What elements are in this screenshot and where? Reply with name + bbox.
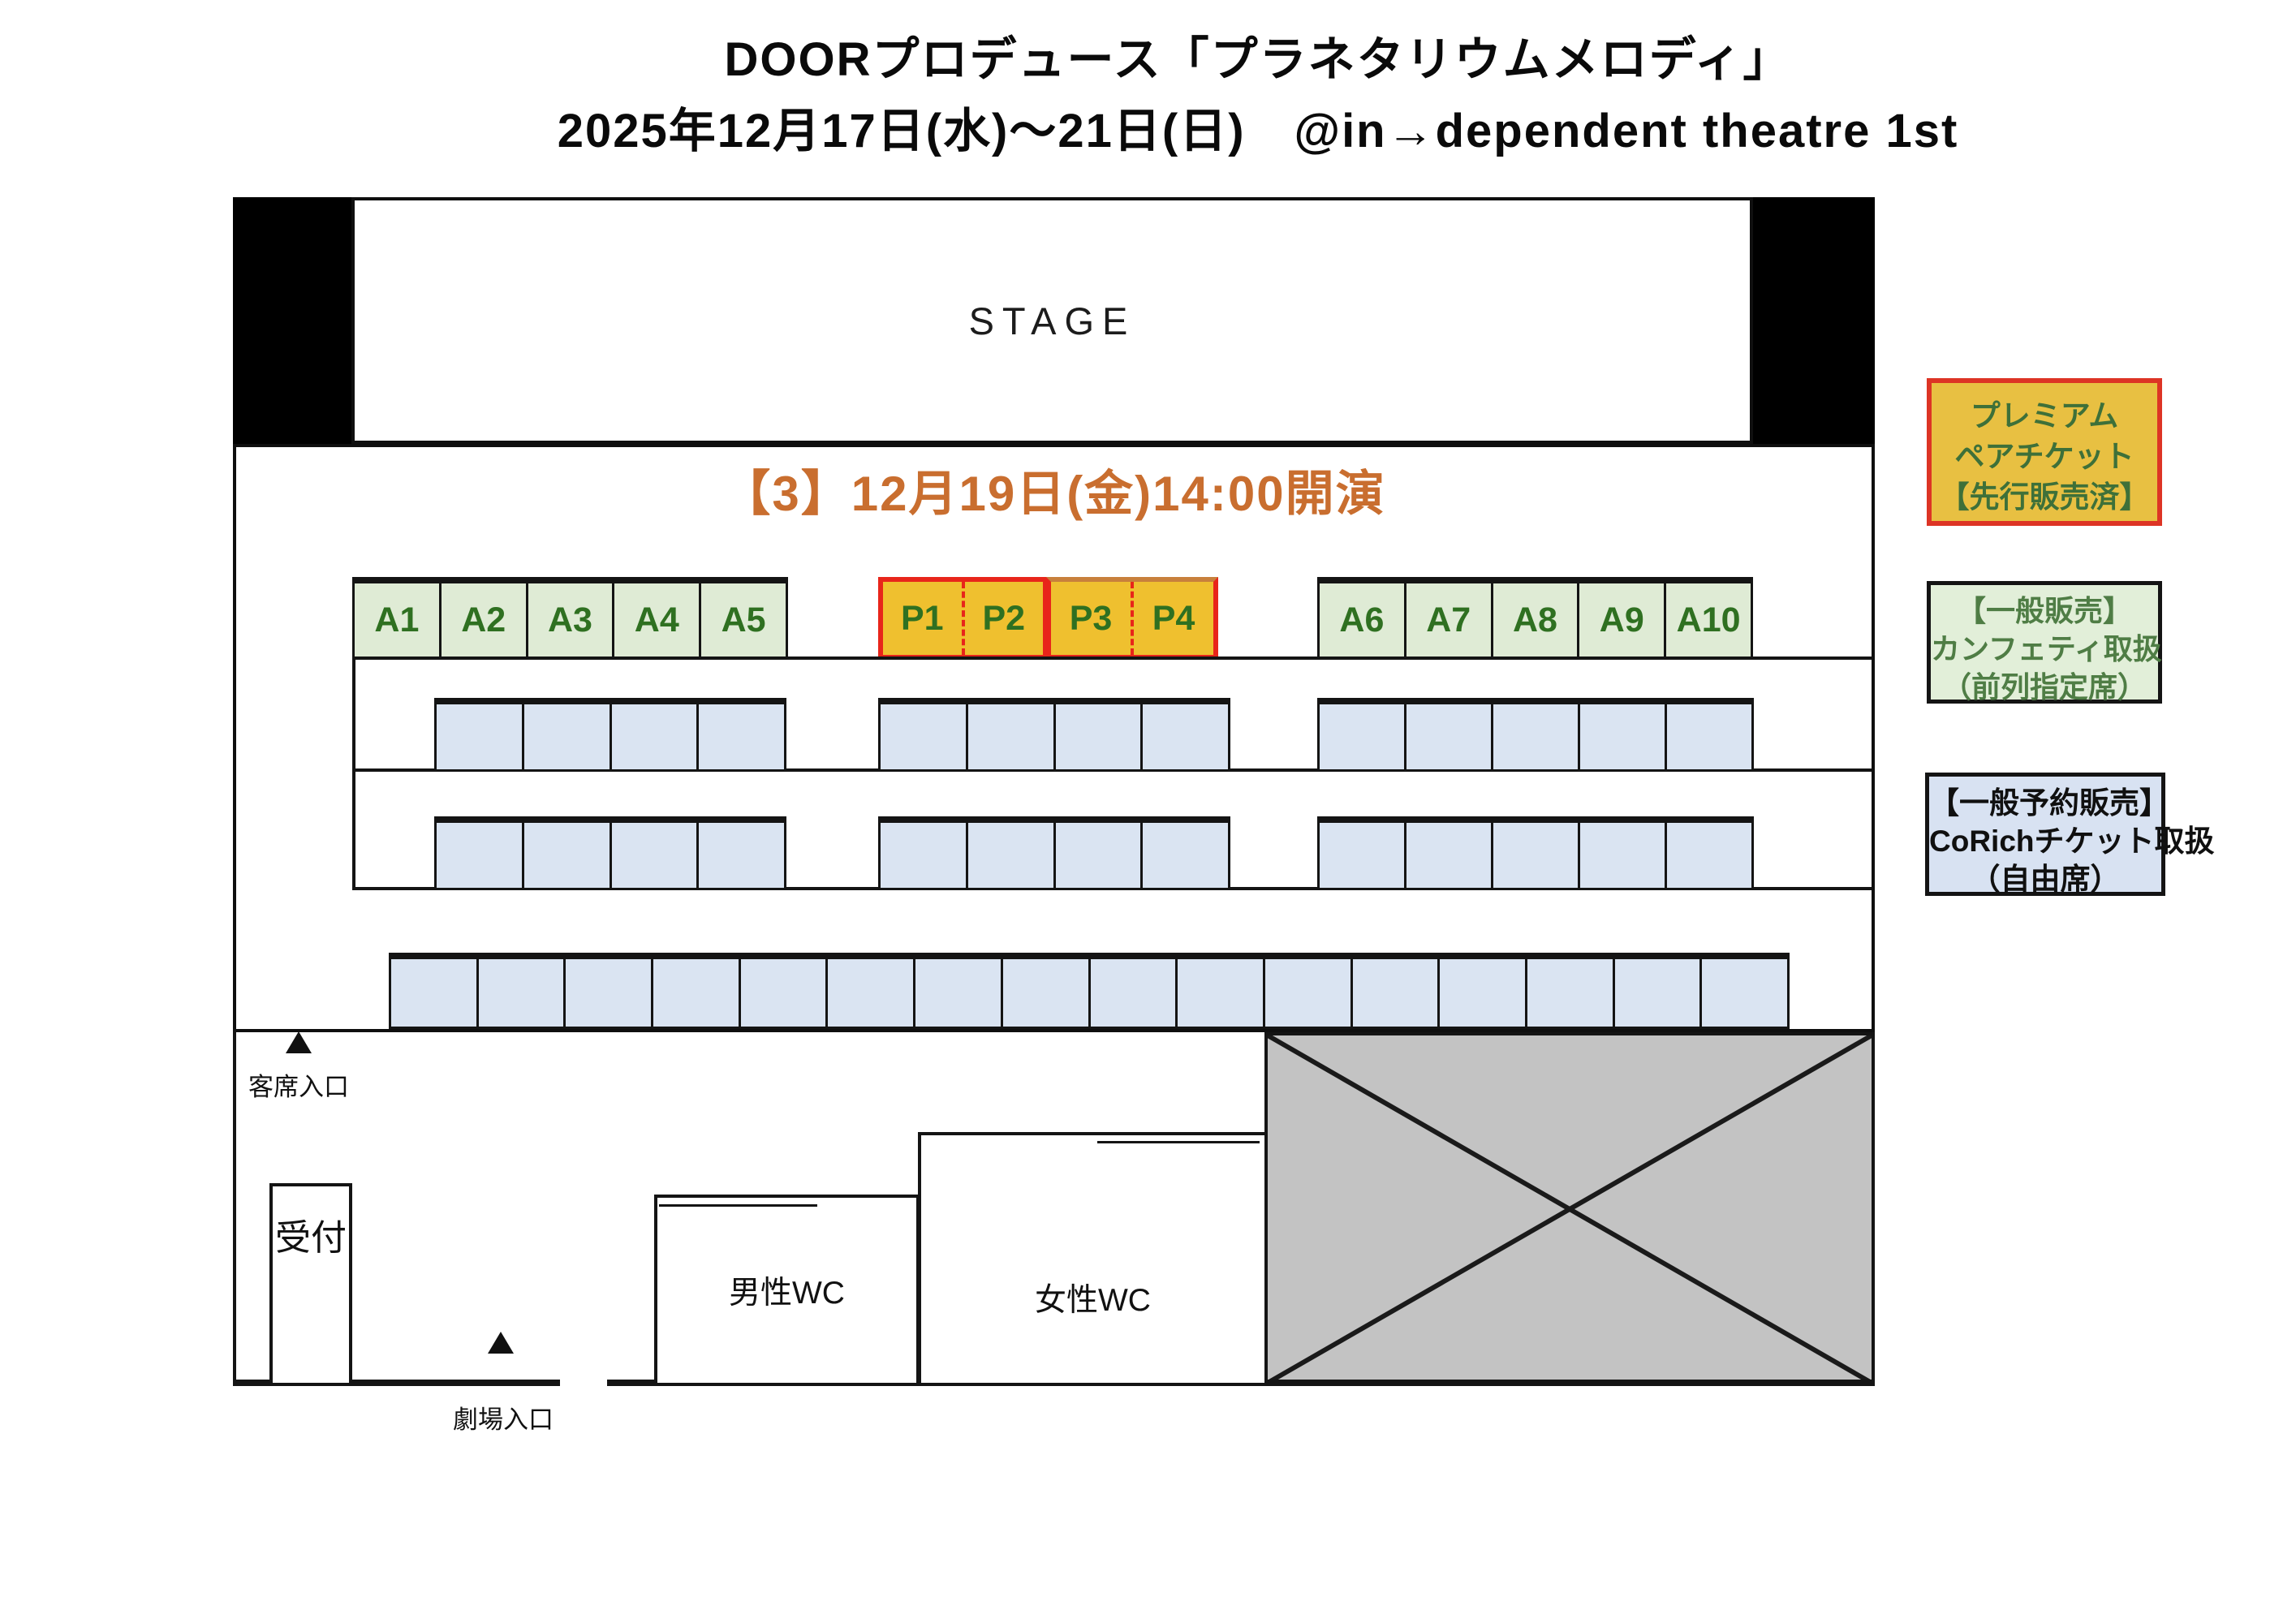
mens-wc-box: 男性WC [654, 1195, 920, 1386]
seat [1320, 704, 1404, 769]
legend-general-line3: （前列指定席） [1931, 668, 2158, 706]
seat [563, 959, 651, 1027]
seat [1175, 959, 1263, 1027]
seat [1088, 959, 1176, 1027]
seat [1491, 823, 1578, 888]
seating-chart-page: DOORプロデュース「プラネタリウムメロディ」 2025年12月17日(水)〜2… [0, 0, 2296, 1623]
seat-label: A9 [1600, 601, 1644, 640]
seat [825, 959, 913, 1027]
seat [1404, 704, 1491, 769]
legend-reservation-line2: CoRichチケット取扱 [1929, 822, 2161, 860]
seat [1665, 823, 1751, 888]
page-title-line1: DOORプロデュース「プラネタリウムメロディ」 [219, 24, 2296, 96]
blocked-area-cross-icon [1268, 1035, 1872, 1383]
premium-pair-box-1: P1P2 [878, 577, 1048, 660]
seat-a10: A10 [1664, 583, 1751, 657]
legend-premium-line1: プレミアム [1932, 396, 2157, 437]
seat-a2: A2 [439, 583, 526, 657]
theater-entrance-arrow-icon [488, 1332, 514, 1354]
stage-area: STAGE [351, 197, 1753, 444]
seat [1053, 704, 1141, 769]
seat-label: A1 [374, 601, 419, 640]
seat-a7: A7 [1404, 583, 1491, 657]
seat [1001, 959, 1088, 1027]
seat [1699, 959, 1787, 1027]
seat [437, 704, 522, 769]
seat [391, 959, 476, 1027]
legend-premium-pair-ticket: プレミアム ペアチケット 【先行販売済】 [1927, 378, 2162, 526]
seat-label: A7 [1426, 601, 1471, 640]
seat [1404, 823, 1491, 888]
seat-p3: P3 [1051, 582, 1131, 655]
middle-row2-center-group [878, 816, 1230, 890]
seat-label: A10 [1677, 601, 1741, 640]
blocked-area [1264, 1032, 1875, 1386]
seat [1525, 959, 1613, 1027]
stage-label: STAGE [969, 299, 1136, 343]
legend-premium-line3: 【先行販売済】 [1932, 477, 2157, 518]
audience-entrance-label: 客席入口 [226, 1066, 372, 1103]
seat-label: A5 [722, 601, 766, 640]
seat [1053, 823, 1141, 888]
middle-row1-right-group [1317, 698, 1754, 772]
seat [1437, 959, 1525, 1027]
womens-wc-label: 女性WC [1035, 1275, 1151, 1320]
seat-label: A6 [1339, 601, 1384, 640]
seat [1263, 959, 1350, 1027]
seat-p1: P1 [883, 582, 962, 655]
premium-pair-box-2: P3P4 [1046, 577, 1218, 660]
row-divider-line-1 [352, 657, 1872, 660]
back-row-group [389, 953, 1790, 1029]
middle-row2-right-group [1317, 816, 1754, 890]
seat [437, 823, 522, 888]
middle-row1-left-group [434, 698, 786, 772]
seat [1613, 959, 1700, 1027]
reception-label: 受付 [273, 1186, 349, 1272]
seat [1578, 704, 1665, 769]
seat-label: P1 [901, 599, 944, 639]
seat-label: A3 [548, 601, 592, 640]
seat-a5: A5 [699, 583, 786, 657]
seat-p2: P2 [962, 582, 1044, 655]
seat [1140, 704, 1228, 769]
legend-general-line2: カンフェティ取扱 [1931, 630, 2158, 668]
seat [739, 959, 826, 1027]
seat [610, 704, 697, 769]
seat-label: A8 [1513, 601, 1557, 640]
womens-wc-box: 女性WC [918, 1132, 1268, 1386]
legend-general-line1: 【一般販売】 [1931, 592, 2158, 630]
seat-a1: A1 [355, 583, 439, 657]
legend-premium-line2: ペアチケット [1932, 437, 2157, 477]
page-title-line2: 2025年12月17日(水)〜21日(日) @in→dependent thea… [219, 96, 2296, 167]
mens-wc-label: 男性WC [729, 1268, 845, 1313]
seat [476, 959, 564, 1027]
legend-reservation-line1: 【一般予約販売】 [1929, 784, 2161, 822]
seat [1578, 823, 1665, 888]
session-heading: 【3】12月19日(金)14:00開演 [233, 454, 1875, 525]
seat [1320, 823, 1404, 888]
page-title: DOORプロデュース「プラネタリウムメロディ」 2025年12月17日(水)〜2… [219, 24, 2296, 167]
seat [966, 823, 1053, 888]
seat [881, 823, 966, 888]
womens-wc-door-line [1097, 1141, 1260, 1143]
seat-label: A2 [461, 601, 506, 640]
legend-reservation-line3: （自由席） [1929, 860, 2161, 898]
seat [881, 704, 966, 769]
stage-wing-left [233, 197, 351, 444]
theater-entrance-label: 劇場入口 [426, 1399, 580, 1436]
seat-label: A4 [635, 601, 679, 640]
seat [1665, 704, 1751, 769]
seat-label: P3 [1070, 599, 1113, 639]
legend-general-reservation: 【一般予約販売】 CoRichチケット取扱 （自由席） [1925, 773, 2165, 896]
middle-row2-left-group [434, 816, 786, 890]
seat [522, 823, 610, 888]
seat-a3: A3 [526, 583, 613, 657]
seat-p4: P4 [1131, 582, 1213, 655]
seat [913, 959, 1001, 1027]
row-left-step-line [352, 657, 355, 890]
seat [696, 704, 784, 769]
seat [1140, 823, 1228, 888]
stage-wing-right [1753, 197, 1875, 444]
front-row-right-group: A6A7A8A9A10 [1317, 577, 1753, 660]
seat [1350, 959, 1438, 1027]
seat-label: P4 [1152, 599, 1195, 639]
seat [610, 823, 697, 888]
seat [966, 704, 1053, 769]
seat-a8: A8 [1491, 583, 1578, 657]
seat [651, 959, 739, 1027]
mens-wc-door-line [659, 1204, 817, 1207]
seat-a9: A9 [1577, 583, 1664, 657]
seat-a4: A4 [612, 583, 699, 657]
middle-row1-center-group [878, 698, 1230, 772]
legend-general-sale: 【一般販売】 カンフェティ取扱 （前列指定席） [1927, 581, 2162, 704]
seat [522, 704, 610, 769]
seat-label: P2 [982, 599, 1025, 639]
seat-a6: A6 [1320, 583, 1404, 657]
front-row-left-group: A1A2A3A4A5 [352, 577, 788, 660]
seat [696, 823, 784, 888]
audience-entrance-arrow-icon [286, 1031, 312, 1053]
seat [1491, 704, 1578, 769]
reception-box: 受付 [269, 1183, 352, 1386]
